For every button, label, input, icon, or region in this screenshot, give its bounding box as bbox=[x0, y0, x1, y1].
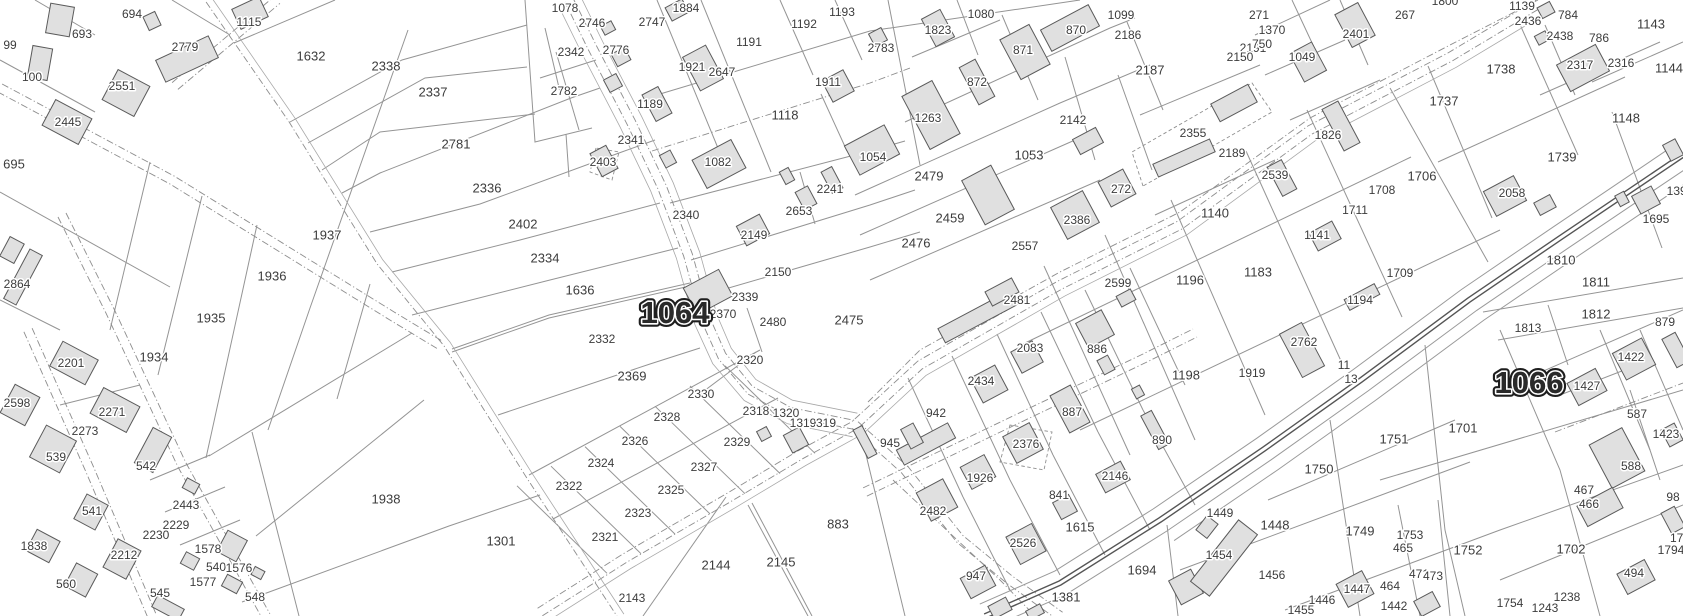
svg-text:2149: 2149 bbox=[741, 228, 768, 242]
svg-text:750: 750 bbox=[1252, 37, 1272, 51]
svg-text:2402: 2402 bbox=[509, 217, 538, 232]
svg-text:1578: 1578 bbox=[195, 542, 222, 556]
svg-text:1449: 1449 bbox=[1207, 506, 1234, 520]
svg-text:2324: 2324 bbox=[588, 456, 615, 470]
svg-text:1711: 1711 bbox=[1342, 203, 1368, 217]
svg-text:890: 890 bbox=[1152, 433, 1172, 447]
svg-text:1838: 1838 bbox=[21, 539, 48, 553]
svg-text:1753: 1753 bbox=[1397, 528, 1424, 542]
svg-text:2330: 2330 bbox=[688, 387, 715, 401]
svg-text:1395: 1395 bbox=[1667, 184, 1683, 198]
svg-text:2322: 2322 bbox=[556, 479, 583, 493]
svg-text:2340: 2340 bbox=[673, 208, 700, 222]
svg-text:1049: 1049 bbox=[1289, 50, 1316, 64]
svg-text:2434: 2434 bbox=[968, 374, 995, 388]
svg-text:2481: 2481 bbox=[1004, 293, 1031, 307]
svg-text:100: 100 bbox=[22, 70, 42, 84]
svg-text:2783: 2783 bbox=[868, 41, 895, 55]
svg-text:942: 942 bbox=[926, 406, 946, 420]
svg-text:1370: 1370 bbox=[1259, 23, 1286, 37]
svg-text:1448: 1448 bbox=[1261, 518, 1290, 533]
svg-text:1442: 1442 bbox=[1381, 599, 1408, 613]
svg-text:693: 693 bbox=[72, 27, 92, 41]
svg-text:1934: 1934 bbox=[140, 350, 169, 365]
svg-text:1053: 1053 bbox=[1015, 148, 1044, 163]
svg-text:2150: 2150 bbox=[765, 265, 792, 279]
svg-text:2273: 2273 bbox=[72, 424, 99, 438]
svg-text:1823: 1823 bbox=[925, 23, 952, 37]
svg-text:2539: 2539 bbox=[1262, 168, 1289, 182]
svg-text:2317: 2317 bbox=[1567, 58, 1594, 72]
svg-text:2476: 2476 bbox=[902, 236, 931, 251]
svg-text:1702: 1702 bbox=[1557, 542, 1586, 557]
svg-text:2325: 2325 bbox=[658, 483, 685, 497]
svg-text:2271: 2271 bbox=[99, 405, 126, 419]
svg-text:2482: 2482 bbox=[920, 504, 947, 518]
svg-text:2201: 2201 bbox=[58, 356, 85, 370]
svg-text:1189: 1189 bbox=[637, 97, 663, 111]
svg-text:1423: 1423 bbox=[1653, 427, 1680, 441]
svg-text:1636: 1636 bbox=[566, 283, 595, 298]
svg-text:1148: 1148 bbox=[1612, 111, 1640, 126]
svg-text:1194: 1194 bbox=[1347, 293, 1373, 307]
svg-text:2647: 2647 bbox=[709, 65, 736, 79]
svg-text:1054: 1054 bbox=[860, 150, 887, 164]
svg-text:871: 871 bbox=[1013, 43, 1033, 57]
svg-text:319: 319 bbox=[816, 416, 836, 430]
svg-text:2480: 2480 bbox=[760, 315, 787, 329]
svg-text:1911: 1911 bbox=[815, 75, 841, 89]
svg-text:2403: 2403 bbox=[590, 155, 617, 169]
svg-text:2186: 2186 bbox=[1115, 28, 1142, 42]
svg-text:2341: 2341 bbox=[618, 133, 645, 147]
svg-text:2332: 2332 bbox=[589, 332, 616, 346]
svg-text:1263: 1263 bbox=[915, 111, 942, 125]
svg-text:545: 545 bbox=[150, 586, 170, 600]
svg-text:1938: 1938 bbox=[372, 492, 401, 507]
svg-text:1192: 1192 bbox=[791, 17, 817, 31]
svg-text:1810: 1810 bbox=[1547, 253, 1576, 268]
svg-text:2599: 2599 bbox=[1105, 276, 1132, 290]
svg-text:1738: 1738 bbox=[1487, 62, 1516, 77]
svg-text:695: 695 bbox=[3, 157, 25, 172]
svg-text:1708: 1708 bbox=[1369, 183, 1396, 197]
svg-text:2443: 2443 bbox=[173, 498, 200, 512]
svg-text:1812: 1812 bbox=[1582, 307, 1611, 322]
svg-text:1615: 1615 bbox=[1066, 520, 1095, 535]
svg-text:2316: 2316 bbox=[1608, 56, 1635, 70]
svg-text:1456: 1456 bbox=[1259, 568, 1286, 582]
svg-text:1455: 1455 bbox=[1288, 603, 1315, 616]
svg-text:464: 464 bbox=[1380, 579, 1400, 593]
svg-text:1749: 1749 bbox=[1346, 524, 1375, 539]
svg-text:2320: 2320 bbox=[737, 353, 764, 367]
svg-text:1447: 1447 bbox=[1344, 582, 1371, 596]
svg-text:2370: 2370 bbox=[710, 307, 737, 321]
svg-text:99: 99 bbox=[3, 38, 17, 52]
svg-text:1921: 1921 bbox=[679, 60, 706, 74]
svg-text:2230: 2230 bbox=[143, 528, 170, 542]
svg-text:1752: 1752 bbox=[1454, 543, 1483, 558]
svg-text:694: 694 bbox=[122, 7, 142, 21]
svg-text:1754: 1754 bbox=[1497, 596, 1524, 610]
svg-text:1935: 1935 bbox=[197, 311, 226, 326]
svg-text:1706: 1706 bbox=[1408, 169, 1437, 184]
svg-text:2323: 2323 bbox=[625, 506, 652, 520]
svg-text:540: 540 bbox=[206, 560, 226, 574]
svg-text:542: 542 bbox=[136, 459, 156, 473]
svg-text:1751: 1751 bbox=[1380, 432, 1409, 447]
svg-text:2241: 2241 bbox=[817, 182, 844, 196]
svg-text:2479: 2479 bbox=[915, 169, 944, 184]
svg-text:2321: 2321 bbox=[592, 530, 619, 544]
svg-text:2747: 2747 bbox=[639, 15, 666, 29]
svg-text:2598: 2598 bbox=[4, 396, 31, 410]
svg-text:2339: 2339 bbox=[732, 290, 759, 304]
svg-text:2864: 2864 bbox=[4, 277, 31, 291]
svg-text:494: 494 bbox=[1624, 566, 1644, 580]
svg-text:1198: 1198 bbox=[1172, 368, 1200, 383]
svg-text:2445: 2445 bbox=[55, 115, 82, 129]
svg-text:2212: 2212 bbox=[111, 548, 138, 562]
svg-text:539: 539 bbox=[46, 450, 66, 464]
svg-text:870: 870 bbox=[1066, 23, 1086, 37]
svg-text:1301: 1301 bbox=[487, 534, 516, 549]
svg-text:2436: 2436 bbox=[1515, 14, 1542, 28]
svg-text:2355: 2355 bbox=[1180, 126, 1207, 140]
svg-text:1139: 1139 bbox=[1509, 0, 1535, 13]
svg-text:2145: 2145 bbox=[767, 555, 796, 570]
svg-text:541: 541 bbox=[82, 504, 102, 518]
svg-text:945: 945 bbox=[880, 436, 900, 450]
svg-text:2327: 2327 bbox=[691, 460, 718, 474]
svg-text:2475: 2475 bbox=[835, 313, 864, 328]
svg-text:587: 587 bbox=[1627, 407, 1647, 421]
svg-text:841: 841 bbox=[1049, 488, 1069, 502]
svg-text:98: 98 bbox=[1666, 490, 1680, 504]
svg-text:2189: 2189 bbox=[1219, 146, 1246, 160]
svg-text:1078: 1078 bbox=[552, 1, 579, 15]
svg-text:271: 271 bbox=[1249, 8, 1269, 22]
svg-text:2369: 2369 bbox=[618, 369, 647, 384]
svg-text:1115: 1115 bbox=[237, 15, 262, 29]
svg-text:1193: 1193 bbox=[829, 5, 855, 19]
svg-text:786: 786 bbox=[1589, 31, 1609, 45]
svg-text:1238: 1238 bbox=[1554, 590, 1581, 604]
svg-text:2762: 2762 bbox=[1291, 335, 1318, 349]
svg-text:1813: 1813 bbox=[1515, 321, 1542, 335]
svg-text:2318: 2318 bbox=[743, 404, 770, 418]
svg-text:2143: 2143 bbox=[619, 591, 646, 605]
svg-text:1082: 1082 bbox=[705, 155, 732, 169]
svg-text:1750: 1750 bbox=[1305, 462, 1334, 477]
svg-text:2337: 2337 bbox=[419, 85, 448, 100]
svg-text:887: 887 bbox=[1062, 405, 1082, 419]
svg-text:1694: 1694 bbox=[1128, 563, 1157, 578]
svg-text:1576: 1576 bbox=[226, 561, 253, 575]
svg-text:466: 466 bbox=[1579, 497, 1599, 511]
svg-text:465: 465 bbox=[1393, 541, 1413, 555]
svg-text:1381: 1381 bbox=[1052, 590, 1081, 605]
svg-text:1926: 1926 bbox=[967, 471, 994, 485]
svg-text:2326: 2326 bbox=[622, 434, 649, 448]
svg-text:2328: 2328 bbox=[654, 410, 681, 424]
svg-text:2187: 2187 bbox=[1136, 63, 1165, 78]
svg-text:2058: 2058 bbox=[1499, 186, 1526, 200]
svg-text:1064: 1064 bbox=[641, 295, 711, 330]
svg-text:1695: 1695 bbox=[1643, 212, 1670, 226]
svg-text:2557: 2557 bbox=[1012, 239, 1039, 253]
svg-text:2782: 2782 bbox=[551, 84, 578, 98]
svg-text:467: 467 bbox=[1574, 483, 1594, 497]
svg-text:879: 879 bbox=[1655, 315, 1675, 329]
svg-text:1427: 1427 bbox=[1574, 379, 1601, 393]
svg-text:2781: 2781 bbox=[442, 137, 471, 152]
svg-text:1118: 1118 bbox=[772, 108, 799, 123]
svg-text:1701: 1701 bbox=[1449, 421, 1478, 436]
svg-text:1884: 1884 bbox=[673, 1, 700, 15]
svg-text:560: 560 bbox=[56, 577, 76, 591]
svg-text:883: 883 bbox=[827, 517, 849, 532]
svg-text:267: 267 bbox=[1395, 8, 1415, 22]
svg-text:1632: 1632 bbox=[297, 49, 326, 64]
svg-text:1141: 1141 bbox=[1304, 228, 1330, 242]
svg-text:2526: 2526 bbox=[1010, 536, 1037, 550]
svg-text:1800: 1800 bbox=[1432, 0, 1459, 8]
svg-text:1144: 1144 bbox=[1655, 61, 1683, 76]
svg-text:2144: 2144 bbox=[702, 558, 731, 573]
svg-text:1422: 1422 bbox=[1618, 350, 1645, 364]
svg-text:1794: 1794 bbox=[1658, 543, 1683, 557]
svg-text:2150: 2150 bbox=[1227, 50, 1254, 64]
svg-text:1454: 1454 bbox=[1206, 548, 1233, 562]
svg-text:872: 872 bbox=[967, 75, 987, 89]
svg-text:2376: 2376 bbox=[1013, 437, 1040, 451]
svg-text:2336: 2336 bbox=[473, 181, 502, 196]
svg-text:2334: 2334 bbox=[531, 251, 560, 266]
svg-text:2146: 2146 bbox=[1102, 469, 1129, 483]
svg-text:1196: 1196 bbox=[1176, 273, 1204, 288]
svg-text:1140: 1140 bbox=[1201, 206, 1229, 221]
svg-text:2551: 2551 bbox=[109, 79, 136, 93]
svg-text:2342: 2342 bbox=[558, 45, 585, 59]
svg-text:1936: 1936 bbox=[258, 269, 287, 284]
svg-text:473: 473 bbox=[1423, 569, 1443, 583]
svg-text:1080: 1080 bbox=[968, 7, 995, 21]
svg-text:2142: 2142 bbox=[1060, 113, 1087, 127]
svg-text:2438: 2438 bbox=[1547, 29, 1574, 43]
svg-text:947: 947 bbox=[966, 569, 986, 583]
svg-text:2329: 2329 bbox=[724, 435, 751, 449]
svg-text:1577: 1577 bbox=[190, 575, 217, 589]
svg-text:1737: 1737 bbox=[1430, 94, 1459, 109]
svg-text:1191: 1191 bbox=[736, 35, 762, 49]
svg-text:1183: 1183 bbox=[1244, 265, 1272, 280]
svg-text:2746: 2746 bbox=[579, 16, 606, 30]
svg-text:2653: 2653 bbox=[786, 204, 813, 218]
svg-text:1937: 1937 bbox=[313, 228, 342, 243]
svg-text:2083: 2083 bbox=[1017, 341, 1044, 355]
svg-text:272: 272 bbox=[1111, 182, 1131, 196]
svg-text:1099: 1099 bbox=[1108, 8, 1135, 22]
svg-text:1826: 1826 bbox=[1315, 128, 1342, 142]
svg-text:886: 886 bbox=[1087, 342, 1107, 356]
svg-text:2338: 2338 bbox=[372, 59, 401, 74]
svg-text:1739: 1739 bbox=[1548, 150, 1577, 165]
svg-text:1319: 1319 bbox=[790, 416, 817, 430]
svg-text:1066: 1066 bbox=[1495, 365, 1564, 400]
svg-text:588: 588 bbox=[1621, 459, 1641, 473]
svg-text:2401: 2401 bbox=[1343, 27, 1370, 41]
svg-text:2386: 2386 bbox=[1064, 213, 1091, 227]
svg-text:1709: 1709 bbox=[1387, 266, 1414, 280]
svg-text:13: 13 bbox=[1344, 372, 1358, 386]
svg-text:11: 11 bbox=[1338, 358, 1351, 372]
svg-text:2779: 2779 bbox=[172, 40, 199, 54]
svg-text:2459: 2459 bbox=[936, 211, 965, 226]
svg-text:1143: 1143 bbox=[1637, 17, 1665, 32]
svg-text:784: 784 bbox=[1558, 8, 1578, 22]
svg-text:1811: 1811 bbox=[1582, 275, 1610, 290]
svg-text:548: 548 bbox=[245, 590, 265, 604]
svg-text:2776: 2776 bbox=[603, 43, 630, 57]
svg-text:1919: 1919 bbox=[1239, 366, 1266, 380]
